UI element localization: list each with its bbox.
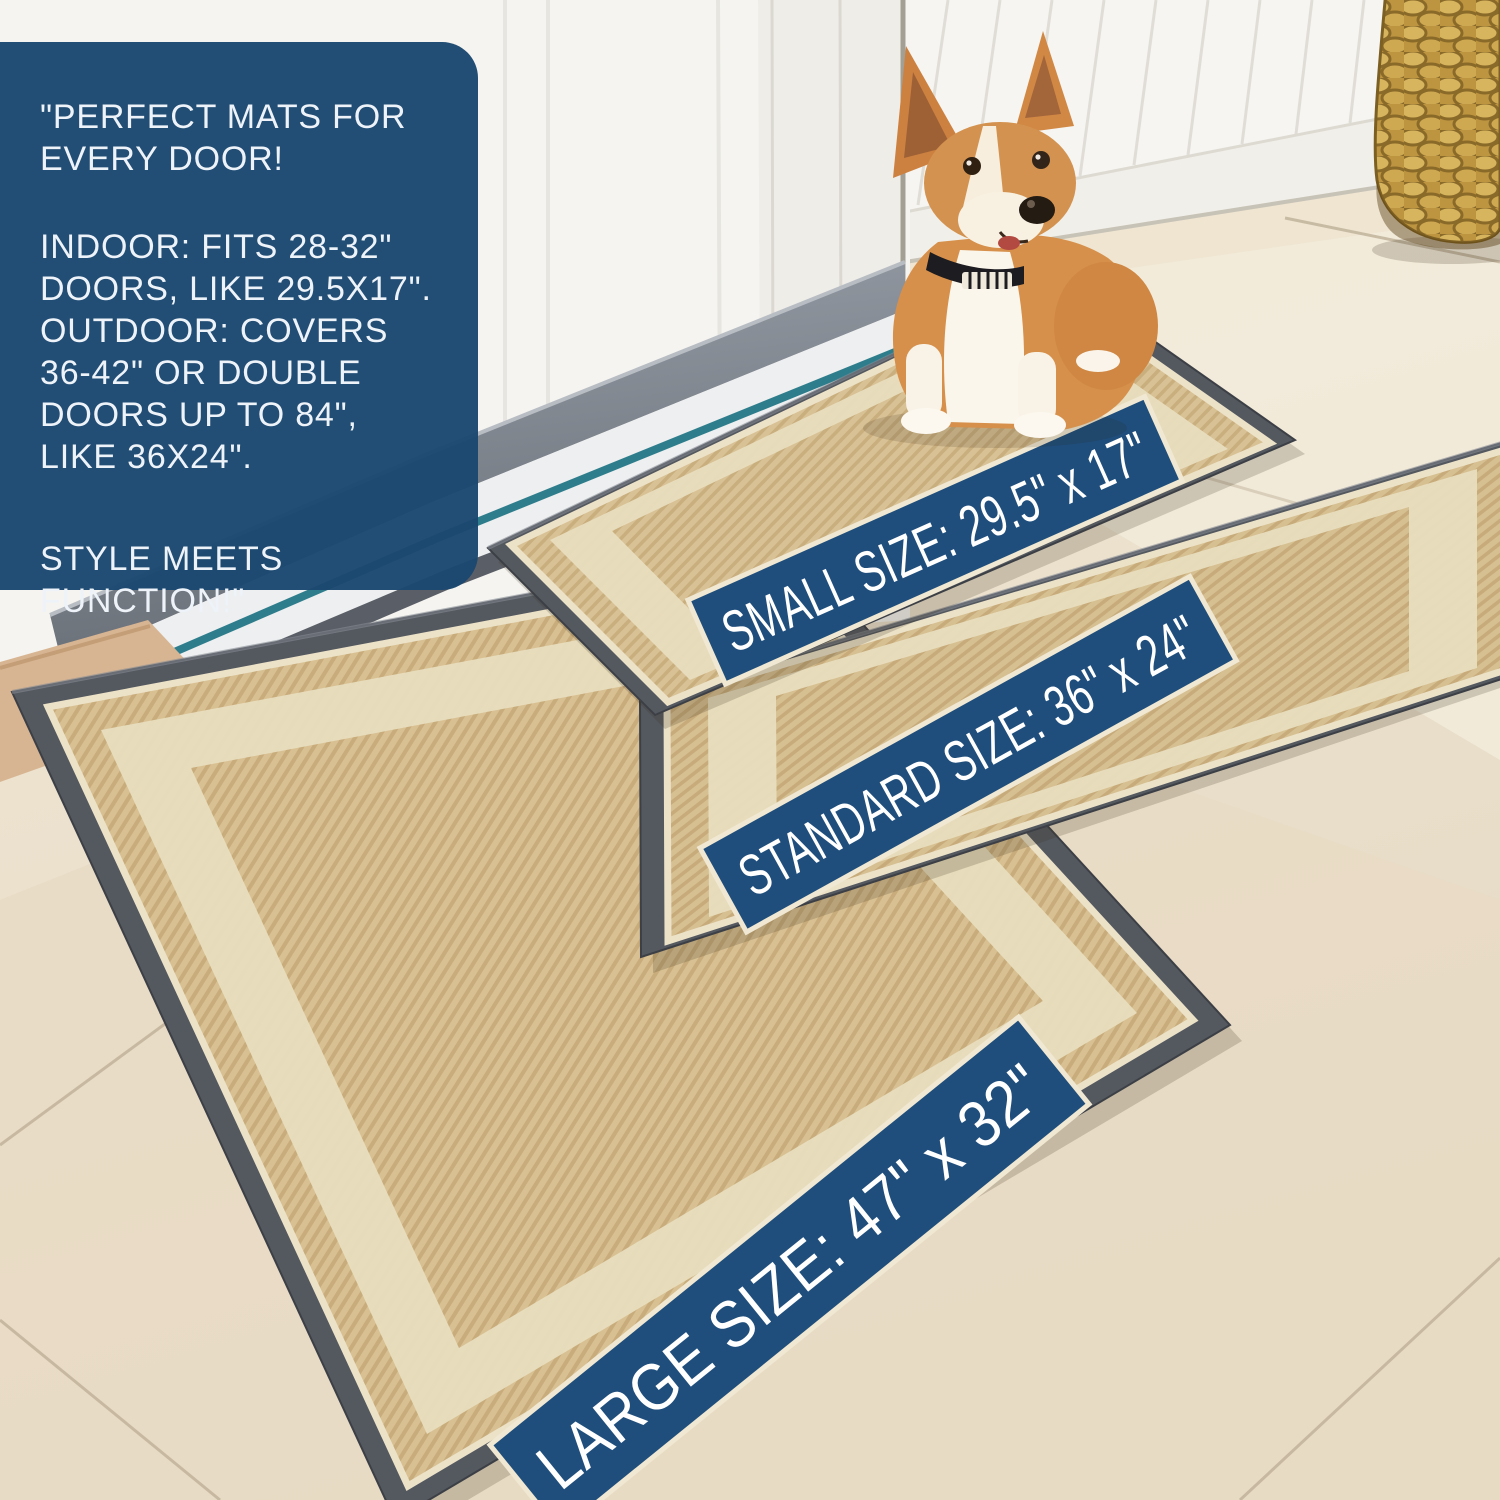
dog-rear-paw bbox=[1076, 350, 1120, 372]
dog-paw-right bbox=[1014, 412, 1066, 438]
dog-nose-glint bbox=[1027, 200, 1035, 208]
dog-eye-right bbox=[1032, 151, 1050, 169]
dog-eye-left-glint bbox=[966, 160, 971, 165]
info-box-tagline: STYLE MEETS FUNCTION!" bbox=[40, 538, 442, 622]
product-image-canvas: LARGE SIZE: 47" x 32" STANDARD SIZE: 36"… bbox=[0, 0, 1500, 1500]
dog-tongue bbox=[998, 236, 1020, 250]
wicker-basket bbox=[1372, 0, 1500, 264]
info-box-headline: "PERFECT MATS FOR EVERY DOOR! bbox=[40, 96, 442, 180]
dog-paw-left bbox=[901, 408, 951, 434]
dog-eye-right-glint bbox=[1035, 154, 1040, 159]
info-box: "PERFECT MATS FOR EVERY DOOR! INDOOR: FI… bbox=[0, 42, 478, 590]
info-box-details: INDOOR: FITS 28-32" DOORS, LIKE 29.5X17"… bbox=[40, 226, 442, 478]
basket-body bbox=[1375, 0, 1500, 242]
dog-eye-left bbox=[963, 157, 981, 175]
dog-nose bbox=[1019, 196, 1055, 224]
